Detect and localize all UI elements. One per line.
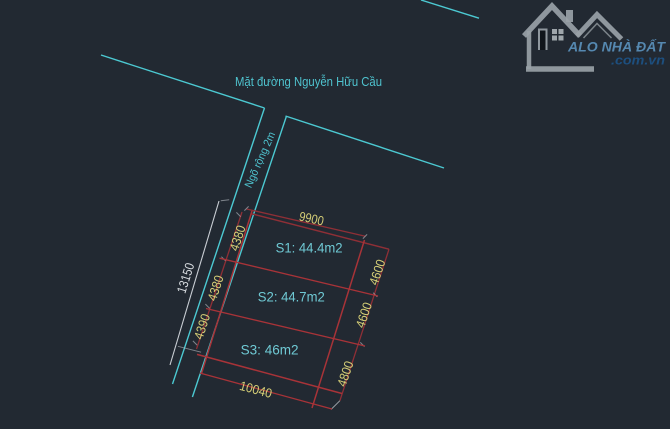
svg-text:.com.vn: .com.vn xyxy=(611,54,665,68)
svg-text:ALO NHÀ ĐẤT: ALO NHÀ ĐẤT xyxy=(567,38,666,55)
svg-text:S3: 46m2: S3: 46m2 xyxy=(241,342,299,358)
svg-text:S1: 44.4m2: S1: 44.4m2 xyxy=(276,240,343,256)
svg-text:Mặt đường Nguyễn Hữu Cầu: Mặt đường Nguyễn Hữu Cầu xyxy=(235,74,382,89)
svg-text:S2: 44.7m2: S2: 44.7m2 xyxy=(258,289,325,305)
